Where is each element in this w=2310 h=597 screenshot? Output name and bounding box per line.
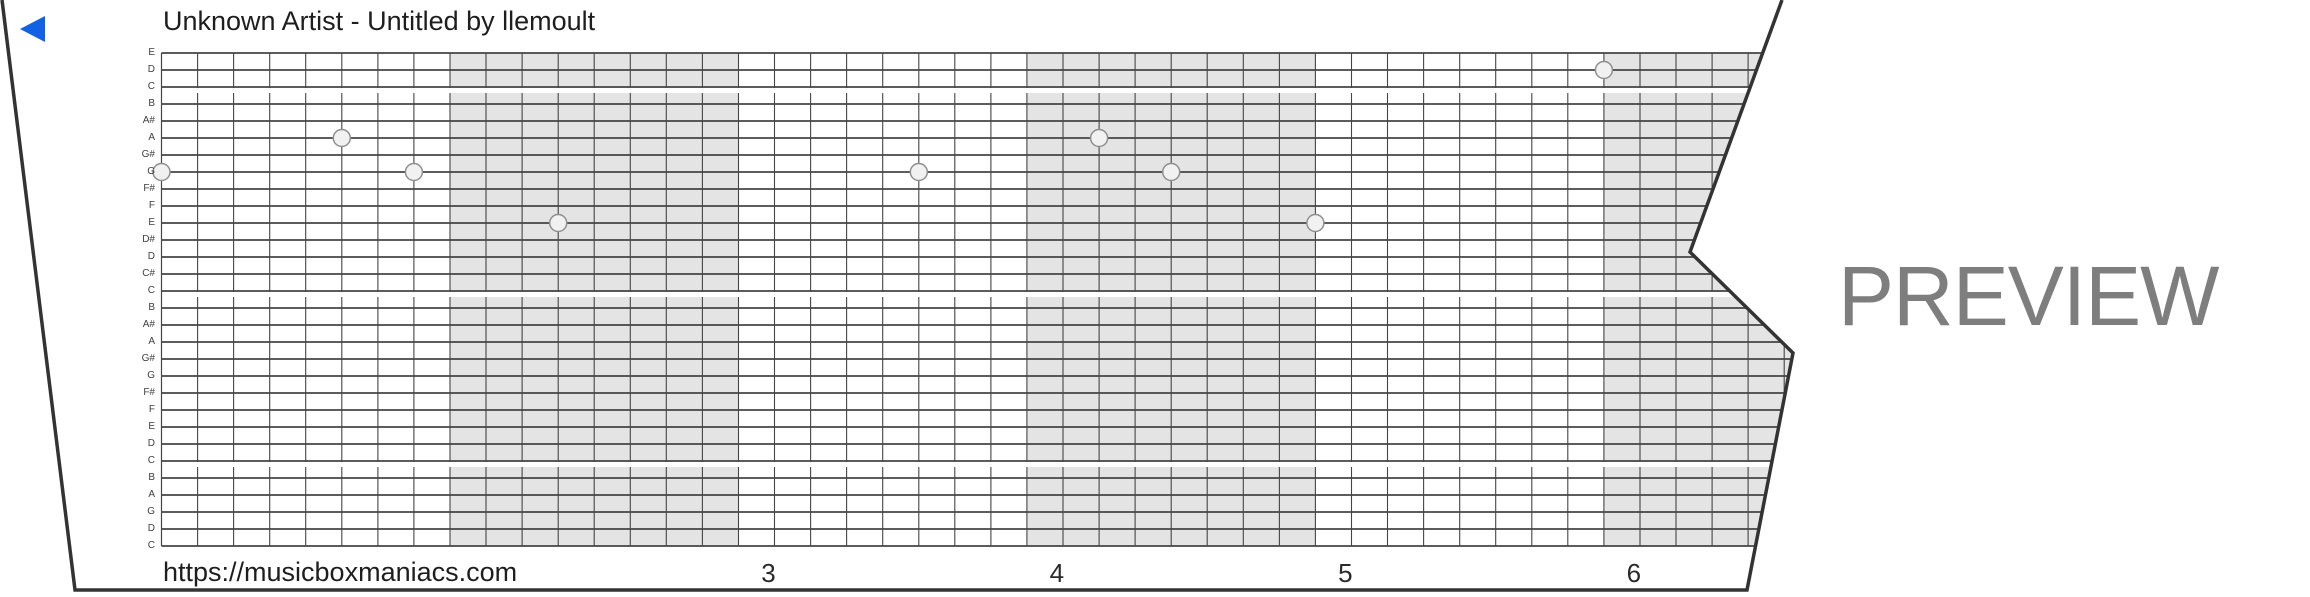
- pitch-label-12: D: [55, 252, 155, 262]
- pitch-label-28: D: [55, 524, 155, 534]
- pitch-label-14: C: [55, 286, 155, 296]
- note-hole-E: [1307, 215, 1324, 232]
- pitch-label-17: A: [55, 337, 155, 347]
- strip-paper: [2, 0, 1793, 590]
- note-hole-E: [550, 215, 567, 232]
- pitch-label-22: E: [55, 422, 155, 432]
- pitch-label-15: B: [55, 303, 155, 313]
- pitch-label-8: F#: [55, 184, 155, 194]
- pitch-label-3: B: [55, 99, 155, 109]
- pitch-label-11: D#: [55, 235, 155, 245]
- pitch-label-4: A#: [55, 116, 155, 126]
- music-box-strip-preview: Unknown Artist - Untitled by llemoult ED…: [0, 0, 2310, 597]
- pitch-label-5: A: [55, 133, 155, 143]
- note-hole-A: [1091, 130, 1108, 147]
- pitch-label-29: C: [55, 541, 155, 551]
- note-hole-D: [1595, 62, 1612, 79]
- beat-number-5: 5: [1338, 558, 1352, 589]
- pitch-label-21: F: [55, 405, 155, 415]
- melody-title: Unknown Artist - Untitled by llemoult: [163, 6, 595, 37]
- pitch-label-19: G: [55, 371, 155, 381]
- pitch-label-0: E: [55, 48, 155, 58]
- site-url-text: https://musicboxmaniacs.com: [163, 557, 517, 588]
- pitch-label-16: A#: [55, 320, 155, 330]
- pitch-label-6: G#: [55, 150, 155, 160]
- pitch-label-10: E: [55, 218, 155, 228]
- beat-number-3: 3: [761, 558, 775, 589]
- play-button[interactable]: [20, 16, 45, 42]
- pitch-label-25: B: [55, 473, 155, 483]
- pitch-label-13: C#: [55, 269, 155, 279]
- pitch-label-1: D: [55, 65, 155, 75]
- beat-number-6: 6: [1627, 558, 1641, 589]
- pitch-label-20: F#: [55, 388, 155, 398]
- pitch-label-24: C: [55, 456, 155, 466]
- note-hole-G: [405, 164, 422, 181]
- pitch-label-23: D: [55, 439, 155, 449]
- note-hole-A: [333, 130, 350, 147]
- pitch-label-2: C: [55, 82, 155, 92]
- note-hole-G: [910, 164, 927, 181]
- pitch-label-7: G: [55, 167, 155, 177]
- preview-watermark: PREVIEW: [1838, 248, 2218, 345]
- pitch-label-9: F: [55, 201, 155, 211]
- note-hole-G: [153, 164, 170, 181]
- pitch-label-26: A: [55, 490, 155, 500]
- pitch-label-18: G#: [55, 354, 155, 364]
- pitch-label-27: G: [55, 507, 155, 517]
- note-hole-G: [1163, 164, 1180, 181]
- beat-number-4: 4: [1050, 558, 1064, 589]
